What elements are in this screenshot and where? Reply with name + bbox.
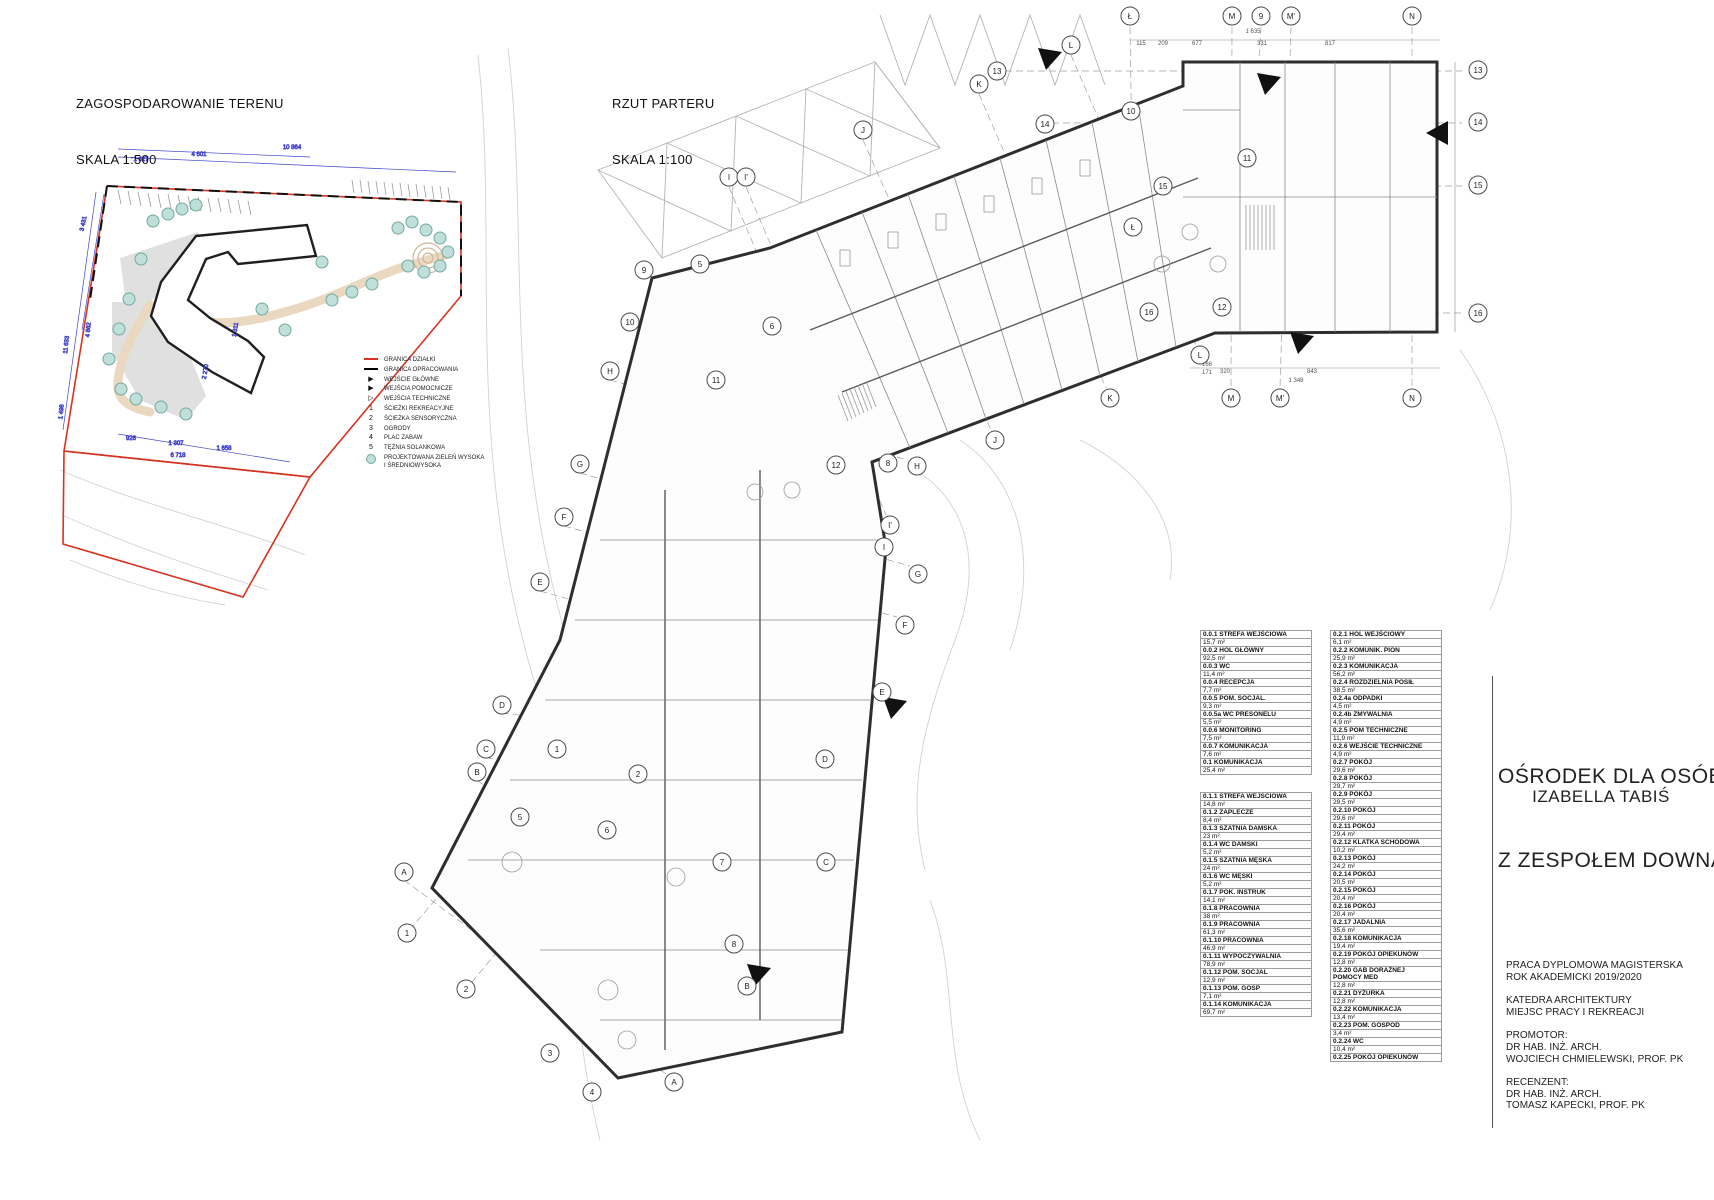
legend-item: GRANICA DZIAŁKI (358, 356, 488, 366)
grid-bubble-label: A (671, 1078, 677, 1087)
red-line-icon (358, 356, 384, 364)
grid-bubble-label: 6 (770, 322, 775, 331)
grid-bubble-label: G (577, 460, 583, 469)
grid-bubble-label: H (607, 367, 613, 376)
room-row-header: 0.2.20 GAB DORAŻNEJ POMOCY MED (1330, 966, 1442, 982)
grid-bubble-label: C (823, 858, 829, 867)
dimension-label: 1 635 (1245, 29, 1261, 35)
site-plan-legend: GRANICA DZIAŁKIGRANICA OPRACOWANIA▶WEJŚC… (358, 356, 488, 470)
grid-bubble-label: H (914, 462, 920, 471)
grid-bubble-label: 15 (1159, 182, 1168, 191)
grid-bubble-label: 2 (464, 985, 469, 994)
grid-bubble-label: Ł (1131, 223, 1136, 232)
grid-bubble-label: 4 (590, 1088, 595, 1097)
grid-bubble-label: N (1409, 394, 1415, 403)
grid-bubble-label: 1 (555, 745, 560, 754)
dimension-label: 320 (1220, 369, 1231, 375)
black-line-icon (358, 366, 384, 374)
triangle-filled-icon: ▶ (358, 376, 384, 384)
grid-bubble-label: J (861, 126, 865, 135)
dimension-label: 11 633 (63, 335, 71, 354)
number-icon: 4 (358, 434, 384, 442)
legend-item: 3OGRODY (358, 425, 488, 435)
dimension-label: 817 (1325, 41, 1336, 47)
grid-bubble-label: I (883, 543, 885, 552)
grid-bubble-label: 3 (548, 1049, 553, 1058)
floor-plan-title-block: RZUT PARTERU SKALA 1:100 (612, 57, 715, 208)
project-title-line2: Z ZESPOŁEM DOWNA (1498, 847, 1704, 875)
legend-item: 1ŚCIEŻKI REKREACYJNE (358, 405, 488, 415)
grid-bubble-label: 5 (518, 813, 523, 822)
legend-item-label: WEJŚCIA TECHNICZNE (384, 395, 451, 403)
legend-item-label: OGRODY (384, 425, 411, 433)
grid-bubble-label: C (483, 745, 489, 754)
grid-bubble-label: D (499, 701, 505, 710)
grid-bubble-label: E (879, 688, 884, 697)
legend-item-label: ŚCIEŻKA SENSORYCZNA (384, 415, 457, 423)
room-table-zone-0-2: 0.2.1 HOL WEJŚCIOWY6,1 m²0.2.2 KOMUNIK. … (1330, 631, 1442, 1062)
grid-bubble-label: E (537, 578, 542, 587)
dimension-label: 10 864 (283, 145, 302, 151)
dimension-label: 1 307 (168, 441, 184, 447)
grid-bubble-label: 8 (732, 940, 737, 949)
grid-bubble-label: I' (888, 521, 892, 530)
grid-bubble-label: 14 (1474, 118, 1483, 127)
legend-item: ▶WEJŚCIA POMOCNICZE (358, 385, 488, 395)
grid-bubble-label: 10 (626, 318, 635, 327)
grid-bubble-label: 12 (1218, 303, 1227, 312)
title-block-info: PRACA DYPLOMOWA MAGISTERSKA ROK AKADEMIC… (1506, 960, 1683, 1112)
grid-bubble-label: 13 (1474, 66, 1483, 75)
grid-bubble-label: 9 (1259, 12, 1264, 21)
grid-bubble-label: B (474, 768, 479, 777)
legend-item-label: GRANICA DZIAŁKI (384, 356, 435, 364)
grid-bubble-label: F (562, 513, 567, 522)
grid-bubble-label: M (1228, 394, 1235, 403)
dimension-label: 1 348 (1288, 378, 1304, 384)
legend-item: 5TĘŻNIA SOLANKOWA (358, 444, 488, 454)
grid-bubble-label: 8 (886, 459, 891, 468)
number-icon: 3 (358, 425, 384, 433)
grid-bubble-label: L (1198, 351, 1203, 360)
legend-item: GRANICA OPRACOWANIA (358, 366, 488, 376)
grid-bubble-label: N (1409, 12, 1415, 21)
project-title: OŚRODEK DLA OSÓB Z ZESPOŁEM DOWNA (1498, 707, 1704, 931)
grid-bubble-label: 6 (605, 826, 610, 835)
grid-bubble-label: A (401, 868, 407, 877)
legend-item-label: PLAC ZABAW (384, 434, 422, 442)
dimension-label: 115 (1136, 41, 1146, 47)
number-icon: 1 (358, 405, 384, 413)
floor-plan-scale: SKALA 1:100 (612, 151, 715, 170)
floor-plan-title: RZUT PARTERU (612, 95, 715, 114)
triangle-filled-icon: ▶ (358, 385, 384, 393)
grid-bubble-label: D (822, 755, 828, 764)
grid-bubble-label: 10 (1127, 107, 1136, 116)
legend-item-label: WEJŚCIE GŁÓWNE (384, 376, 439, 384)
title-block-divider (1492, 676, 1493, 1128)
grid-bubble-label: I' (744, 173, 748, 182)
grid-bubble-label: J (993, 436, 997, 445)
dimension-label: 926 (126, 436, 137, 442)
grid-bubble-label: 9 (642, 266, 647, 275)
legend-item: 4PLAC ZABAW (358, 434, 488, 444)
dimension-label: 171 (1202, 370, 1213, 376)
grid-bubble-label: M' (1276, 394, 1285, 403)
grid-bubble-label: Ł (1128, 12, 1133, 21)
grid-bubble-label: B (744, 982, 749, 991)
grid-bubble-label: K (976, 80, 982, 89)
grid-bubble-label: 7 (720, 858, 725, 867)
triangle-outline-icon: ▷ (358, 395, 384, 403)
grid-bubble-label: 1 (405, 929, 410, 938)
room-row-area: 25,4 m² (1200, 766, 1312, 775)
dimension-label: 677 (1192, 41, 1203, 47)
grid-bubble-label: G (915, 570, 921, 579)
room-table-zone-0-1: 0.1.1 STREFA WEJSCIOWA14,8 m²0.1.2 ZAPLE… (1200, 793, 1312, 1017)
room-table-zone-0-0: 0.0.1 STREFA WEJŚCIOWA15,7 m²0.0.2 HOL G… (1200, 631, 1312, 775)
grid-bubble-label: 11 (712, 376, 721, 385)
dimension-label: 4 862 (85, 321, 93, 337)
dimension-label: 1 658 (216, 446, 232, 452)
grid-bubble-label: 11 (1243, 154, 1252, 163)
legend-item-label: PROJEKTOWANA ZIELEŃ WYSOKA I ŚREDNIOWYSO… (384, 454, 484, 470)
legend-item-label: GRANICA OPRACOWANIA (384, 366, 458, 374)
grid-bubble-label: L (1069, 41, 1074, 50)
grid-bubble-label: 16 (1474, 309, 1483, 318)
greenery-circle-icon (358, 454, 384, 467)
grid-bubble-label: 15 (1474, 181, 1483, 190)
site-plan-scale: SKALA 1:500 (76, 151, 284, 170)
dimension-label: 2 270 (202, 363, 211, 379)
dimension-label: 6 718 (170, 453, 186, 459)
author-name: IZABELLA TABIŚ (1498, 787, 1704, 807)
grid-bubble-label: 14 (1041, 120, 1050, 129)
legend-item: ▶WEJŚCIE GŁÓWNE (358, 376, 488, 386)
legend-item: PROJEKTOWANA ZIELEŃ WYSOKA I ŚREDNIOWYSO… (358, 454, 488, 470)
grid-bubble-label: 13 (993, 67, 1002, 76)
grid-bubble-label: 16 (1145, 308, 1154, 317)
grid-bubble-label: I (728, 173, 730, 182)
site-plan-title: ZAGOSPODAROWANIE TERENU (76, 95, 284, 114)
grid-bubble-label: K (1107, 394, 1113, 403)
number-icon: 2 (358, 415, 384, 423)
room-row-area: 69,7 m² (1200, 1008, 1312, 1017)
grid-bubble-label: F (903, 621, 908, 630)
number-icon: 5 (358, 444, 384, 452)
grid-bubble-label: M' (1287, 12, 1296, 21)
architectural-sheet: 1 6274 60110 8643 4314 86211 6331 4982 2… (0, 0, 1714, 1200)
legend-item-label: TĘŻNIA SOLANKOWA (384, 444, 445, 452)
grid-bubble-label: 5 (698, 260, 703, 269)
dimension-label: 331 (1257, 41, 1268, 47)
dimension-label: 843 (1307, 369, 1318, 375)
site-plan-title-block: ZAGOSPODAROWANIE TERENU SKALA 1:500 (76, 57, 284, 208)
legend-item-label: WEJŚCIA POMOCNICZE (384, 385, 453, 393)
legend-item-label: ŚCIEŻKI REKREACYJNE (384, 405, 453, 413)
legend-item: ▷WEJŚCIA TECHNICZNE (358, 395, 488, 405)
dimension-label: 3 431 (80, 215, 89, 232)
dimension-label: 209 (1158, 41, 1169, 47)
grid-bubble-label: 2 (636, 770, 641, 779)
room-row-header: 0.2.25 POKÓJ OPIEKUNÓW (1330, 1053, 1442, 1062)
grid-bubble-label: 12 (832, 461, 841, 470)
legend-item: 2ŚCIEŻKA SENSORYCZNA (358, 415, 488, 425)
grid-bubble-label: M (1229, 12, 1236, 21)
